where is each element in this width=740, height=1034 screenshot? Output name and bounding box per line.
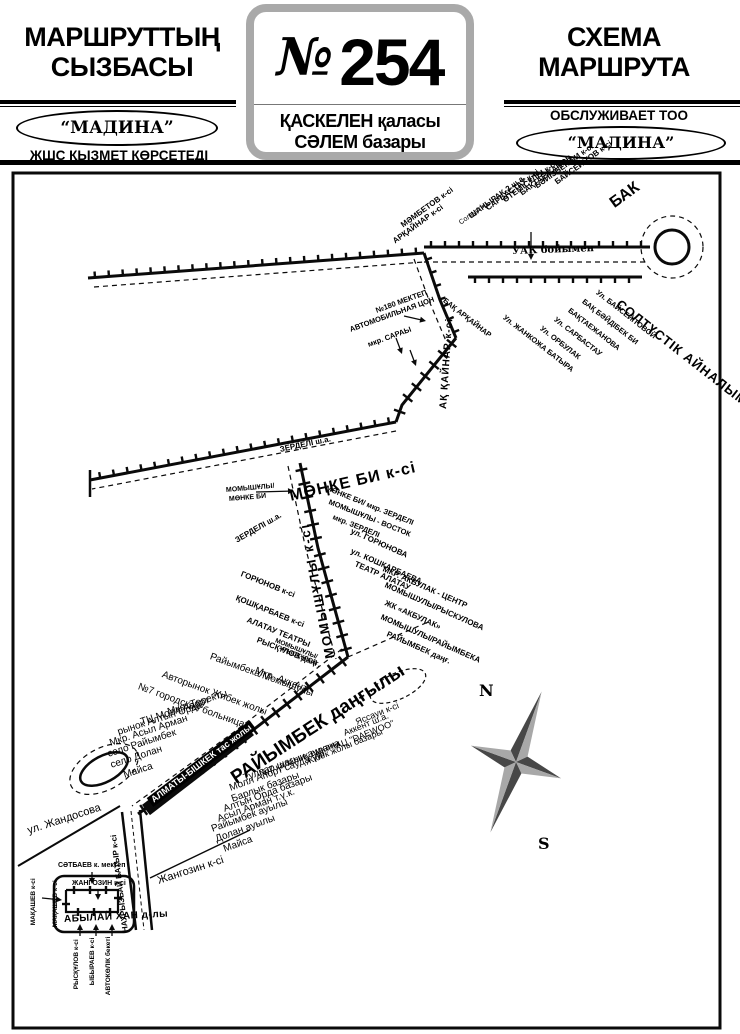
map-label: АВТОКӨЛІК бекеті — [106, 937, 113, 996]
compass-south-label: S — [538, 834, 550, 853]
map-label: МАҚАШЕВ к-сі — [53, 880, 60, 927]
map-label: ЫБЫРАЕВ к-сі — [90, 938, 97, 986]
page-title-kazakh: МАРШРУТТЫҢ СЫЗБАСЫ — [6, 22, 238, 82]
header-divider-bar — [0, 160, 740, 165]
route-number-badge: №254 ҚАСКЕЛЕН қаласы СӘЛЕМ базары — [246, 4, 474, 160]
title-line: СЫЗБАСЫ — [6, 52, 238, 82]
divider — [504, 100, 740, 104]
map-label: МАҚАШЕВ к-сі — [31, 878, 38, 925]
operator-subtitle: ОБСЛУЖИВАЕТ ТОО — [514, 108, 724, 123]
map-label: СӘТБАЕВ к. мектеп — [58, 862, 125, 869]
route-schema-page: МАРШРУТТЫҢ СЫЗБАСЫ “МАДИНА” ЖШС ҚЫЗМЕТ К… — [0, 0, 740, 1034]
operator-oval: “МАДИНА” — [16, 110, 218, 146]
numero-sign: № — [277, 27, 334, 88]
map-label: РЫСҚҰЛОВ к-сі — [74, 939, 81, 989]
route-number: №254 — [254, 12, 466, 105]
route-number-value: 254 — [339, 25, 443, 99]
divider — [0, 106, 236, 107]
operator-oval: “МАДИНА” — [516, 126, 726, 160]
compass-north-label: N — [479, 681, 494, 700]
title-line: МАРШРУТА — [492, 52, 736, 82]
route-map: МӘМБЕТОВ к-сіАРҚАЙНАР к-сіСолтүстікШАҢЫР… — [0, 166, 740, 1034]
title-line: МАРШРУТТЫҢ — [6, 22, 238, 52]
divider — [504, 106, 740, 107]
route-endpoint: СӘЛЕМ базары — [254, 132, 466, 153]
divider — [0, 100, 236, 104]
map-label: ЖАНГОЗИН к-сі — [72, 880, 126, 887]
page-title-russian: СХЕМА МАРШРУТА — [492, 22, 736, 82]
route-city: ҚАСКЕЛЕН қаласы — [254, 111, 466, 132]
title-line: СХЕМА — [492, 22, 736, 52]
route-map-drawing — [0, 166, 740, 1034]
